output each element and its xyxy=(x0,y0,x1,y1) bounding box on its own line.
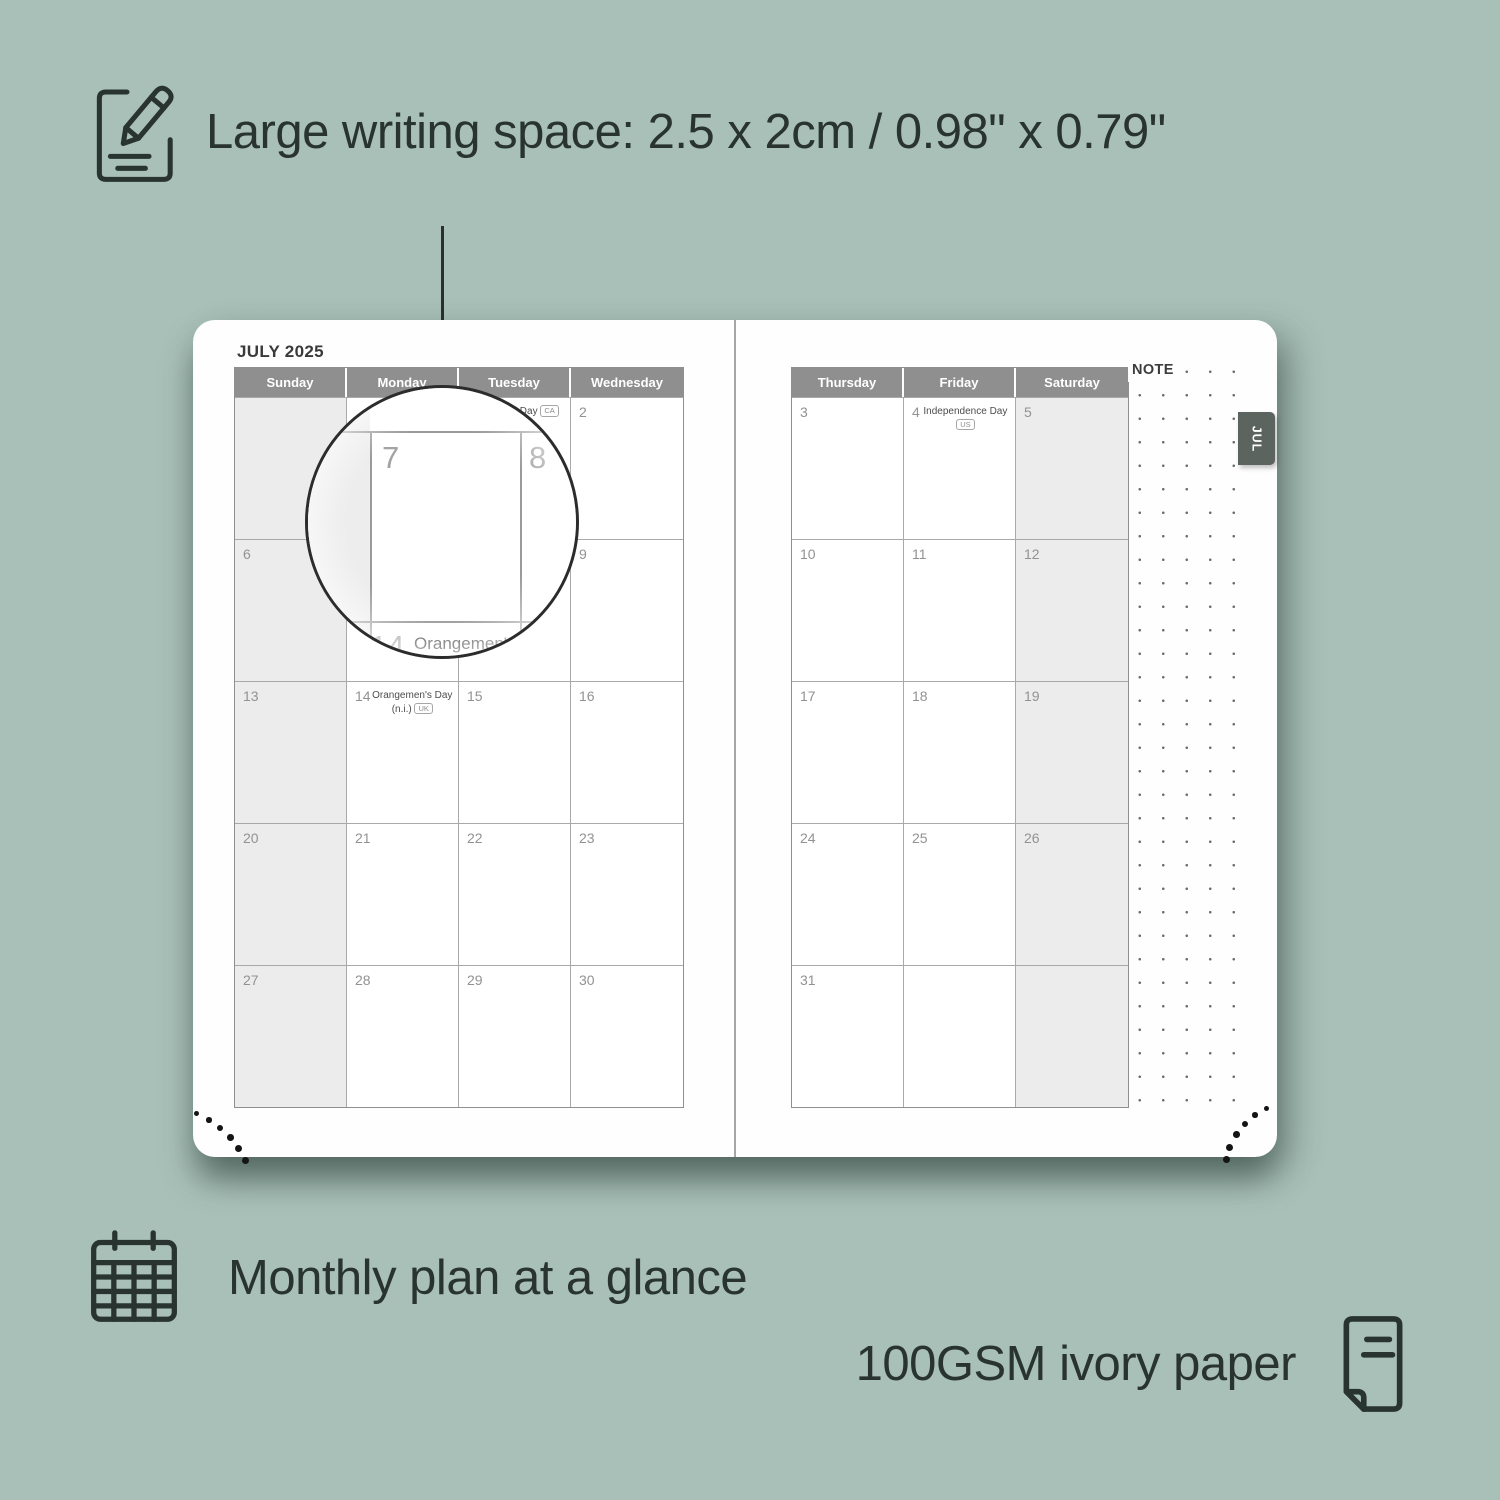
calendar-day-cell: 28 xyxy=(347,965,459,1107)
day-number: 22 xyxy=(467,831,483,846)
day-number: 13 xyxy=(243,689,259,704)
calendar-day-cell: 18 xyxy=(904,681,1016,823)
feature-bottom-right: 100GSM ivory paper xyxy=(856,1310,1414,1418)
calendar-day-cell: 31 xyxy=(792,965,904,1107)
day-number: 20 xyxy=(243,831,259,846)
calendar-day-cell: 30 xyxy=(571,965,683,1107)
day-number: 26 xyxy=(1024,831,1040,846)
calendar-day-cell: 29 xyxy=(459,965,571,1107)
calendar-day-cell: 13 xyxy=(235,681,347,823)
product-image: { "features": { "top": { "icon": "pencil… xyxy=(0,0,1500,1500)
holiday-label: Independence DayUS xyxy=(920,405,1011,432)
month-title: JULY 2025 xyxy=(237,342,324,362)
day-number: 14 xyxy=(355,689,371,704)
calendar-day-cell: 26 xyxy=(1016,823,1128,965)
day-number: 28 xyxy=(355,973,371,988)
day-number: 31 xyxy=(800,973,816,988)
calendar-day-cell: 12 xyxy=(1016,539,1128,681)
calendar-day-cell: 4Independence DayUS xyxy=(904,397,1016,539)
note-label: NOTE xyxy=(1128,362,1183,382)
day-number: 18 xyxy=(912,689,928,704)
day-number: 25 xyxy=(912,831,928,846)
day-number: 2 xyxy=(579,405,587,420)
day-number: 15 xyxy=(467,689,483,704)
holiday-label: Orangemen's Day(n.i.) UK xyxy=(371,689,454,716)
month-tab-label: JUL xyxy=(1250,425,1264,452)
day-number: 21 xyxy=(355,831,371,846)
holiday-country-badge: CA xyxy=(540,405,558,417)
calendar-day-cell: 23 xyxy=(571,823,683,965)
calendar-day-cell: 3 xyxy=(792,397,904,539)
day-number: 24 xyxy=(800,831,816,846)
feature-top: Large writing space: 2.5 x 2cm / 0.98" x… xyxy=(92,78,1166,186)
day-number: 30 xyxy=(579,973,595,988)
calendar-day-cell: 24 xyxy=(792,823,904,965)
paper-sheet-icon xyxy=(1332,1310,1414,1418)
feature-bottom-left-text: Monthly plan at a glance xyxy=(228,1250,747,1306)
calendar-day-cell: 9 xyxy=(571,539,683,681)
weekday-header: Wednesday xyxy=(571,368,683,397)
weekday-header: Thursday xyxy=(792,368,904,397)
calendar-day-cell: 19 xyxy=(1016,681,1128,823)
holiday-country-badge: US xyxy=(956,419,974,431)
calendar-day-cell: 10 xyxy=(792,539,904,681)
day-number: 3 xyxy=(800,405,808,420)
page-spine xyxy=(734,320,736,1157)
calendar-day-cell: 15 xyxy=(459,681,571,823)
calendar-day-cell: 21 xyxy=(347,823,459,965)
calendar-day-cell: 27 xyxy=(235,965,347,1107)
feature-top-text: Large writing space: 2.5 x 2cm / 0.98" x… xyxy=(206,104,1166,160)
holiday-country-badge: UK xyxy=(414,703,432,715)
pencil-notepad-icon xyxy=(92,78,184,186)
day-number: 16 xyxy=(579,689,595,704)
day-number: 23 xyxy=(579,831,595,846)
day-number: 17 xyxy=(800,689,816,704)
day-number: 6 xyxy=(243,547,251,562)
calendar-day-cell: 5 xyxy=(1016,397,1128,539)
feature-bottom-right-text: 100GSM ivory paper xyxy=(856,1336,1296,1392)
note-dot-grid: NOTE xyxy=(1128,360,1242,1106)
day-number: 27 xyxy=(243,973,259,988)
calendar-day-cell: 2 xyxy=(571,397,683,539)
calendar-day-cell: 25 xyxy=(904,823,1016,965)
day-number: 11 xyxy=(912,547,927,562)
month-tab-jul[interactable]: JUL xyxy=(1238,412,1275,465)
day-number: 12 xyxy=(1024,547,1040,562)
calendar-day-cell: 16 xyxy=(571,681,683,823)
day-number: 5 xyxy=(1024,405,1032,420)
calendar-day-cell: 14Orangemen's Day(n.i.) UK xyxy=(347,681,459,823)
magnifier-loupe: 7 8 14 Orangemen's Day (n.i.) UK xyxy=(305,385,579,659)
day-number: 9 xyxy=(579,547,587,562)
loupe-glow xyxy=(308,388,576,656)
calendar-day-cell xyxy=(1016,965,1128,1107)
calendar-day-cell: 22 xyxy=(459,823,571,965)
weekday-header: Friday xyxy=(904,368,1016,397)
feature-bottom-left: Monthly plan at a glance xyxy=(84,1230,747,1326)
calendar-day-cell xyxy=(904,965,1016,1107)
calendar-day-cell: 17 xyxy=(792,681,904,823)
day-number: 4 xyxy=(912,405,920,420)
day-number: 19 xyxy=(1024,689,1040,704)
calendar-right-page: ThursdayFridaySaturday34Independence Day… xyxy=(791,367,1129,1108)
day-number: 29 xyxy=(467,973,483,988)
day-number: 10 xyxy=(800,547,816,562)
calendar-day-cell: 20 xyxy=(235,823,347,965)
weekday-header: Saturday xyxy=(1016,368,1128,397)
calendar-day-cell: 11 xyxy=(904,539,1016,681)
calendar-grid-icon xyxy=(84,1230,184,1326)
